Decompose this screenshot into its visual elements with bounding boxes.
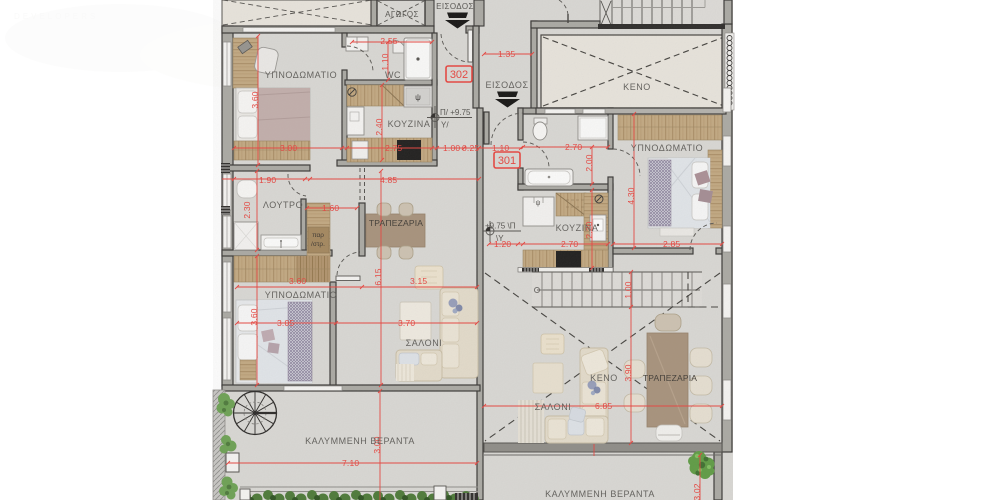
svg-text:DEVELOPERS: DEVELOPERS [14,12,98,21]
